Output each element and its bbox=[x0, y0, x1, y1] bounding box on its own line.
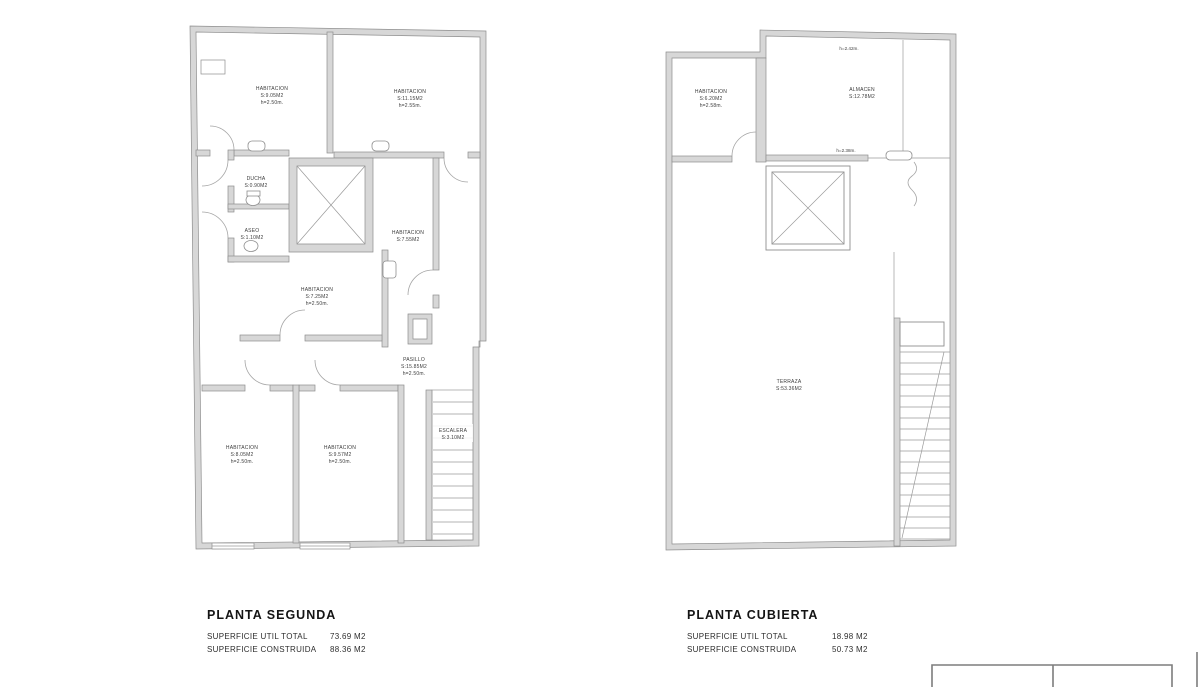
room-name: HABITACION bbox=[324, 445, 356, 451]
height-note: h=2.42m. bbox=[839, 46, 858, 51]
elevator-shaft bbox=[289, 158, 373, 252]
room-name: TERRAZA bbox=[777, 379, 802, 385]
room-name: HABITACION bbox=[256, 86, 288, 92]
room-name: HABITACION bbox=[301, 287, 333, 293]
room-label-pasillo: PASILLO S:15.85M2 h=2.50m. bbox=[401, 357, 427, 377]
room-area: S:12.78M2 bbox=[849, 94, 875, 100]
stairs bbox=[900, 322, 950, 539]
plan-title: PLANTA SEGUNDA bbox=[207, 608, 336, 622]
room-label-almacen: ALMACEN S:12.78M2 bbox=[849, 87, 875, 100]
room-area: S:6.20M2 bbox=[699, 96, 722, 102]
toilet-icon bbox=[244, 241, 258, 252]
room-label-habitacion-2: HABITACION S:11.15M2 h=2.55m. bbox=[394, 89, 426, 109]
radiator-icon bbox=[886, 151, 912, 160]
plan-title: PLANTA CUBIERTA bbox=[687, 608, 818, 622]
sink-icon bbox=[248, 141, 265, 151]
room-height: h=2.50m. bbox=[306, 301, 329, 307]
interior-walls bbox=[196, 32, 480, 543]
room-height: h=2.50m. bbox=[403, 371, 426, 377]
room-area: S:1.10M2 bbox=[240, 235, 263, 241]
door-arc bbox=[732, 132, 756, 156]
room-label-habitacion-4: HABITACION S:7.25M2 h=2.50m. bbox=[301, 287, 333, 307]
plan-planta-cubierta: HABITACION S:6.20M2 h=2.58m. ALMACEN S:1… bbox=[666, 30, 956, 550]
room-area: S:53.36M2 bbox=[776, 386, 802, 392]
room-label-terraza: TERRAZA S:53.36M2 bbox=[776, 379, 802, 392]
room-label-habitacion-1: HABITACION S:9.05M2 h=2.50m. bbox=[256, 86, 288, 106]
room-label-aseo: ASEO S:1.10M2 bbox=[240, 228, 263, 241]
drawing-sheet: HABITACION S:9.05M2 h=2.50m. HABITACION … bbox=[0, 0, 1200, 687]
elevator-cross-icon bbox=[297, 166, 365, 244]
room-area: S:7.55M2 bbox=[396, 237, 419, 243]
room-name: ESCALERA bbox=[439, 428, 468, 434]
room-name: HABITACION bbox=[394, 89, 426, 95]
room-label-habitacion-5: HABITACION S:8.05M2 h=2.50m. bbox=[226, 445, 258, 465]
summary-label: SUPERFICIE UTIL TOTAL bbox=[207, 632, 308, 641]
summary-value: 50.73 M2 bbox=[832, 645, 868, 654]
room-height: h=2.58m. bbox=[700, 103, 723, 109]
room-label-habitacion-6: HABITACION S:9.57M2 h=2.50m. bbox=[324, 445, 356, 465]
summary-label: SUPERFICIE CONSTRUIDA bbox=[687, 645, 797, 654]
height-note: h=2.38m. bbox=[836, 148, 855, 153]
elevator-shaft bbox=[766, 166, 850, 250]
room-area: S:8.05M2 bbox=[230, 452, 253, 458]
room-area: S:3.10M2 bbox=[441, 435, 464, 441]
room-name: HABITACION bbox=[226, 445, 258, 451]
room-name: PASILLO bbox=[403, 357, 425, 363]
elevator-cross-icon bbox=[772, 172, 844, 244]
room-name: HABITACION bbox=[695, 89, 727, 95]
closet bbox=[201, 60, 225, 74]
interior-walls bbox=[672, 40, 950, 546]
summary-planta-segunda: PLANTA SEGUNDA SUPERFICIE UTIL TOTAL 73.… bbox=[207, 608, 366, 654]
room-label-habitacion-3: HABITACION S:7.55M2 bbox=[392, 230, 424, 243]
room-label-habitacion: HABITACION S:6.20M2 h=2.58m. bbox=[695, 89, 727, 109]
sink-icon bbox=[372, 141, 389, 151]
room-name: ASEO bbox=[245, 228, 260, 234]
floor-plan-drawing: HABITACION S:9.05M2 h=2.50m. HABITACION … bbox=[0, 0, 1200, 687]
summary-value: 18.98 M2 bbox=[832, 632, 868, 641]
radiator-icon bbox=[383, 261, 396, 278]
room-area: S:9.57M2 bbox=[328, 452, 351, 458]
summary-label: SUPERFICIE CONSTRUIDA bbox=[207, 645, 317, 654]
room-name: DUCHA bbox=[247, 176, 266, 182]
room-name: ALMACEN bbox=[849, 87, 875, 93]
room-height: h=2.50m. bbox=[329, 459, 352, 465]
exterior-wall bbox=[190, 26, 486, 549]
room-area: S:7.25M2 bbox=[305, 294, 328, 300]
summary-value: 73.69 M2 bbox=[330, 632, 366, 641]
room-height: h=2.55m. bbox=[399, 103, 422, 109]
room-area: S:11.15M2 bbox=[397, 96, 423, 102]
room-name: HABITACION bbox=[392, 230, 424, 236]
summary-value: 88.36 M2 bbox=[330, 645, 366, 654]
toilet-tank-icon bbox=[247, 191, 260, 196]
summary-planta-cubierta: PLANTA CUBIERTA SUPERFICIE UTIL TOTAL 18… bbox=[687, 608, 868, 654]
room-area: S:9.05M2 bbox=[260, 93, 283, 99]
duct-shaft bbox=[408, 314, 432, 344]
summary-label: SUPERFICIE UTIL TOTAL bbox=[687, 632, 788, 641]
room-area: S:15.85M2 bbox=[401, 364, 427, 370]
drain-pipe-icon bbox=[908, 162, 917, 206]
room-label-ducha: DUCHA S:0.90M2 bbox=[244, 176, 267, 189]
room-height: h=2.50m. bbox=[231, 459, 254, 465]
room-area: S:0.90M2 bbox=[244, 183, 267, 189]
title-block bbox=[932, 652, 1197, 687]
room-height: h=2.50m. bbox=[261, 100, 284, 106]
plan-planta-segunda: HABITACION S:9.05M2 h=2.50m. HABITACION … bbox=[190, 26, 486, 549]
room-label-escalera: ESCALERA S:3.10M2 bbox=[433, 424, 473, 442]
stairs-escalera bbox=[432, 390, 473, 540]
room-labels: HABITACION S:6.20M2 h=2.58m. ALMACEN S:1… bbox=[695, 46, 875, 392]
